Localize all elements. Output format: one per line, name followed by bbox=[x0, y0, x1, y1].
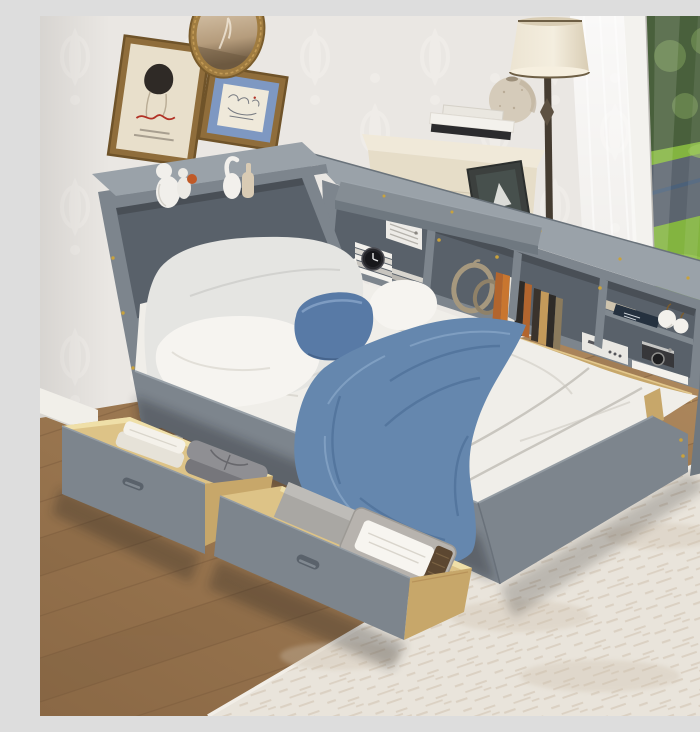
lamp-shade bbox=[510, 17, 589, 78]
poster-frame-small bbox=[199, 65, 288, 150]
wall-clock bbox=[362, 248, 384, 270]
decor-ball bbox=[187, 174, 197, 184]
product-photo bbox=[40, 16, 700, 716]
scene-illustration bbox=[40, 16, 700, 716]
